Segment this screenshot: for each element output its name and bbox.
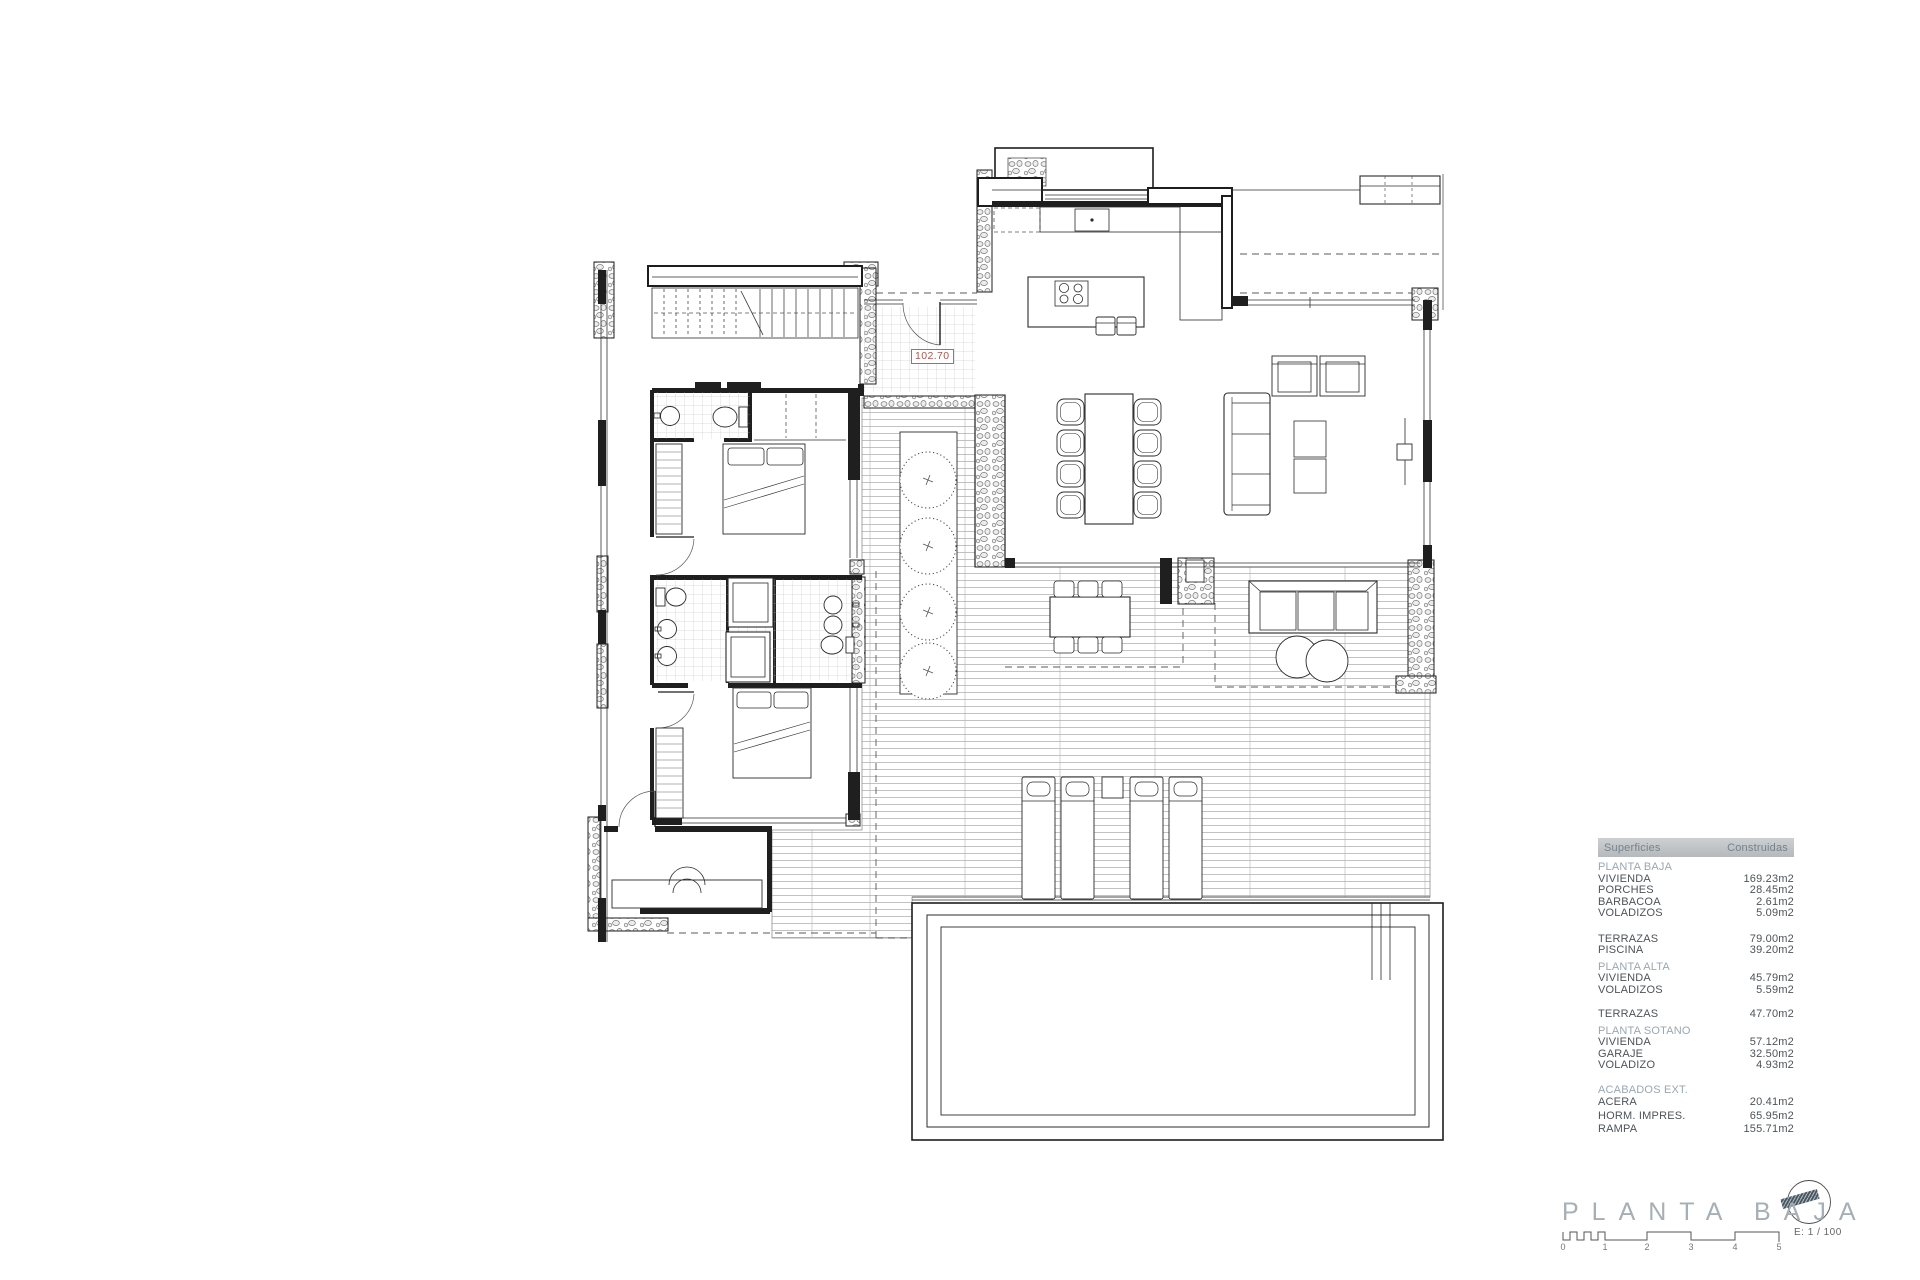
table-section-terrazas-alta: TERRAZAS47.70m2 [1598, 1009, 1794, 1021]
tv-unit [1397, 418, 1412, 485]
outdoor-dining [1050, 581, 1130, 653]
desk [612, 867, 762, 908]
section-title: ACABADOS EXT. [1598, 1085, 1794, 1097]
table-row: RAMPA155.71m2 [1598, 1123, 1794, 1137]
dining-table [1085, 394, 1133, 524]
table-section-planta-alta: PLANTA ALTA VIVIENDA45.79m2 VOLADIZOS5.5… [1598, 962, 1794, 997]
armchair [1272, 356, 1365, 396]
table-row: VOLADIZO4.93m2 [1598, 1060, 1794, 1072]
table-row: VIVIENDA45.79m2 [1598, 973, 1794, 985]
sheet-title: PLANTA BAJA [1562, 1198, 1869, 1227]
table-header-construidas: Construidas [1727, 842, 1788, 854]
pouf [1276, 636, 1348, 682]
level-label: 102.70 [911, 349, 954, 364]
kitchen-island [1028, 277, 1144, 335]
scale-tick-3: 3 [1686, 1242, 1696, 1252]
pool [912, 903, 1443, 1140]
coffee-table [1294, 421, 1326, 493]
table-row: VIVIENDA57.12m2 [1598, 1037, 1794, 1049]
floorplan-sheet: { "plan": { "level_label": "102.70", "ac… [0, 0, 1920, 1280]
table-row: VOLADIZOS5.59m2 [1598, 985, 1794, 997]
scale-bar [1563, 1232, 1779, 1242]
surface-table: Superficies Construidas PLANTA BAJA VIVI… [1598, 838, 1794, 1137]
section-title: PLANTA BAJA [1598, 862, 1794, 874]
scale-tick-0: 0 [1558, 1242, 1568, 1252]
table-section-planta-sotano: PLANTA SOTANO VIVIENDA57.12m2 GARAJE32.5… [1598, 1026, 1794, 1072]
stairs [652, 288, 858, 338]
sideboard [1360, 176, 1440, 204]
scale-label: E: 1 / 100 [1794, 1227, 1842, 1238]
scale-tick-1: 1 [1600, 1242, 1610, 1252]
scale-tick-4: 4 [1730, 1242, 1740, 1252]
table-section-terrazas-piscina: TERRAZAS79.00m2 PISCINA39.20m2 [1598, 934, 1794, 957]
table-row: VOLADIZOS5.09m2 [1598, 908, 1794, 920]
surface-table-header: Superficies Construidas [1598, 838, 1794, 857]
table-row: HORM. IMPRES.65.95m2 [1598, 1110, 1794, 1124]
outdoor-sofa [1249, 581, 1377, 633]
planter [900, 432, 957, 699]
table-header-superficies: Superficies [1604, 842, 1661, 854]
living-furniture [1057, 176, 1440, 524]
kitchen [994, 207, 1222, 335]
sofa [1224, 393, 1270, 515]
table-row: PORCHES28.45m2 [1598, 885, 1794, 897]
table-row: ACERA20.41m2 [1598, 1096, 1794, 1110]
table-section-planta-baja: PLANTA BAJA VIVIENDA169.23m2 PORCHES28.4… [1598, 862, 1794, 920]
table-section-acabados: ACABADOS EXT. ACERA20.41m2 HORM. IMPRES.… [1598, 1085, 1794, 1137]
kitchen-sink-icon [1075, 209, 1109, 231]
table-row: PISCINA39.20m2 [1598, 945, 1794, 957]
table-row: TERRAZAS47.70m2 [1598, 1009, 1794, 1021]
scale-tick-2: 2 [1642, 1242, 1652, 1252]
scale-tick-5: 5 [1774, 1242, 1784, 1252]
